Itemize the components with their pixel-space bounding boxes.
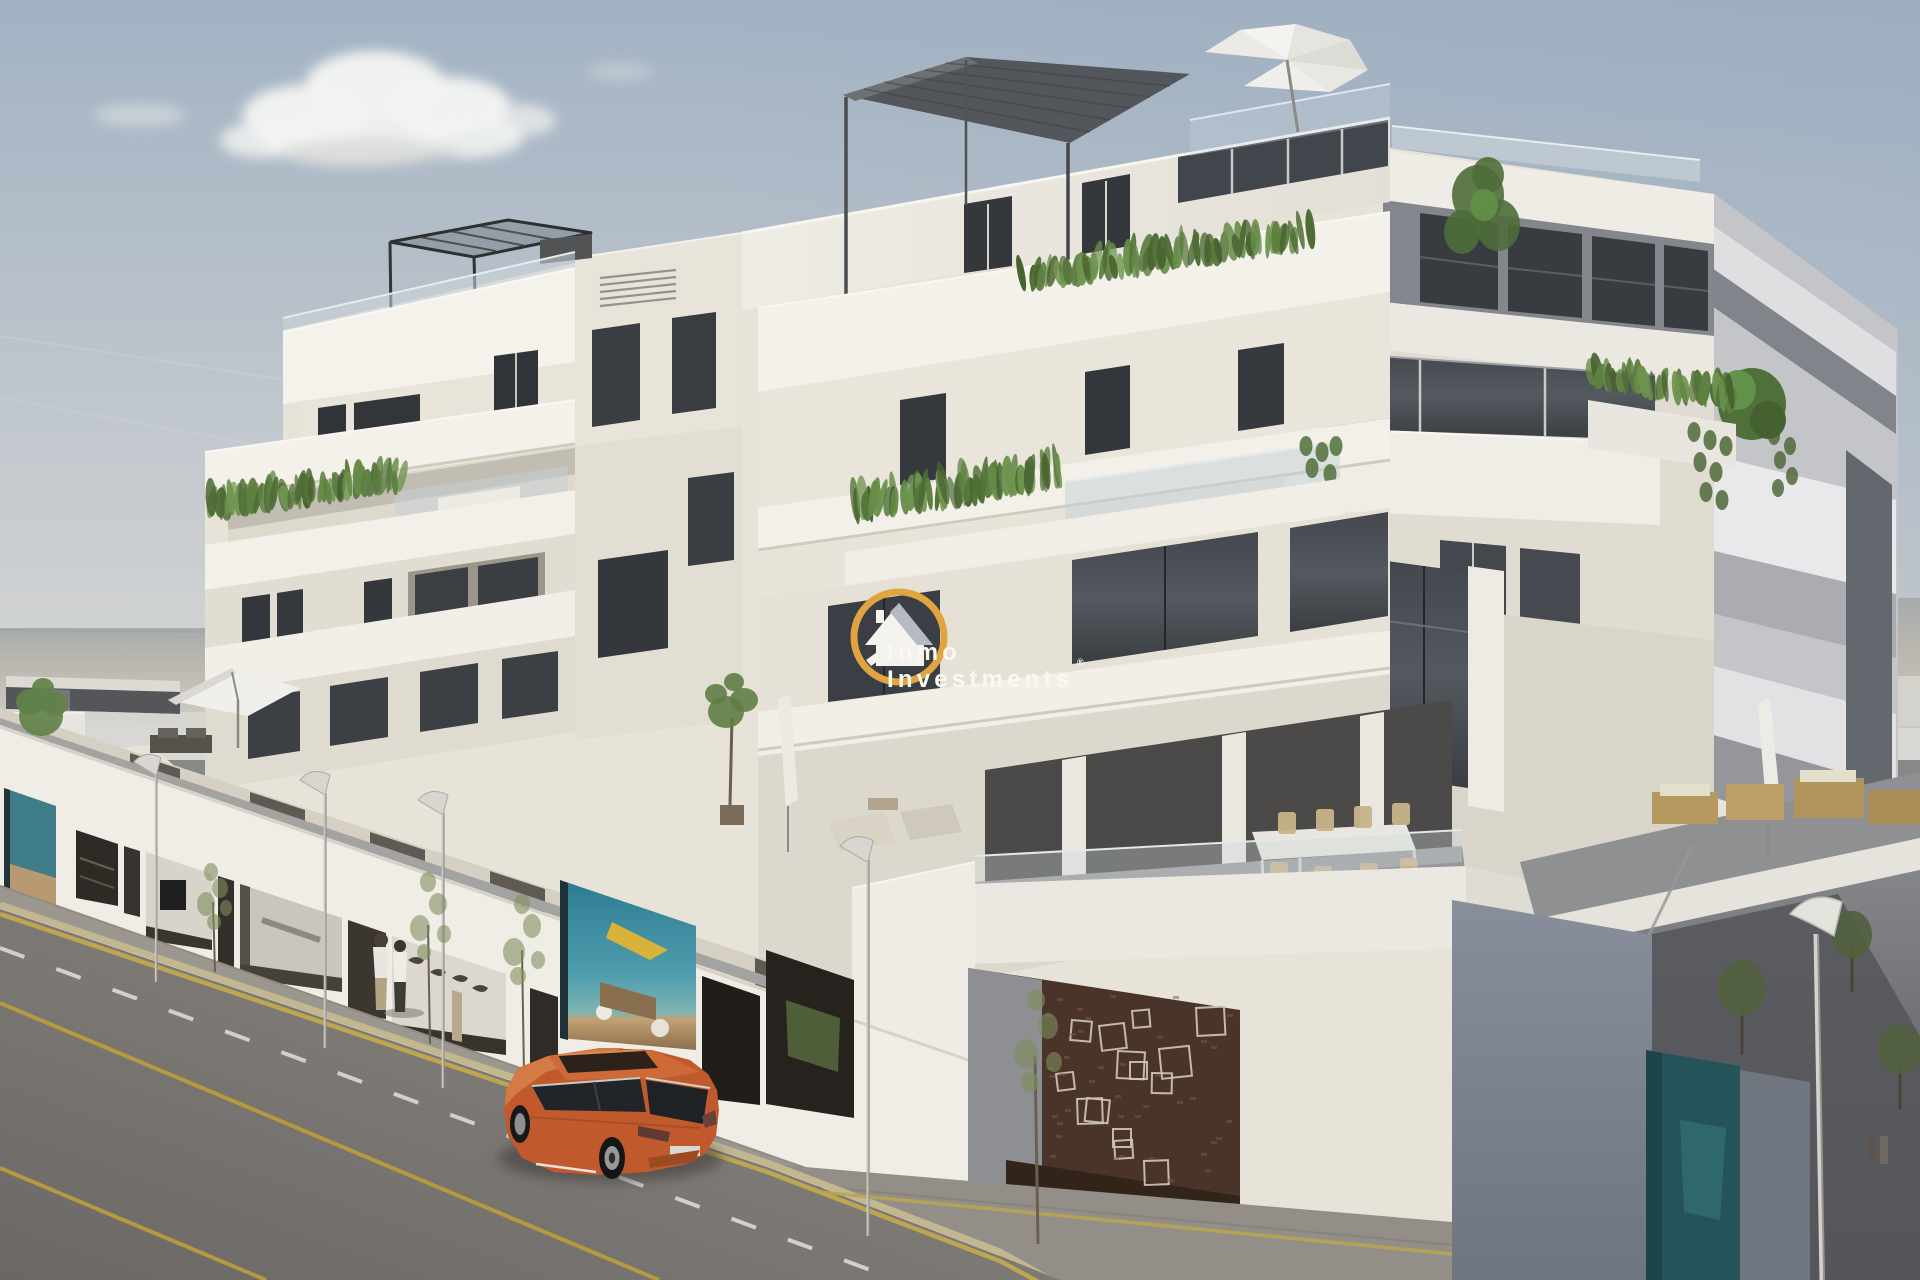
svg-text:Inmo: Inmo xyxy=(887,639,961,666)
svg-text:Investments: Investments xyxy=(887,666,1073,693)
svg-text:®: ® xyxy=(1077,657,1084,667)
